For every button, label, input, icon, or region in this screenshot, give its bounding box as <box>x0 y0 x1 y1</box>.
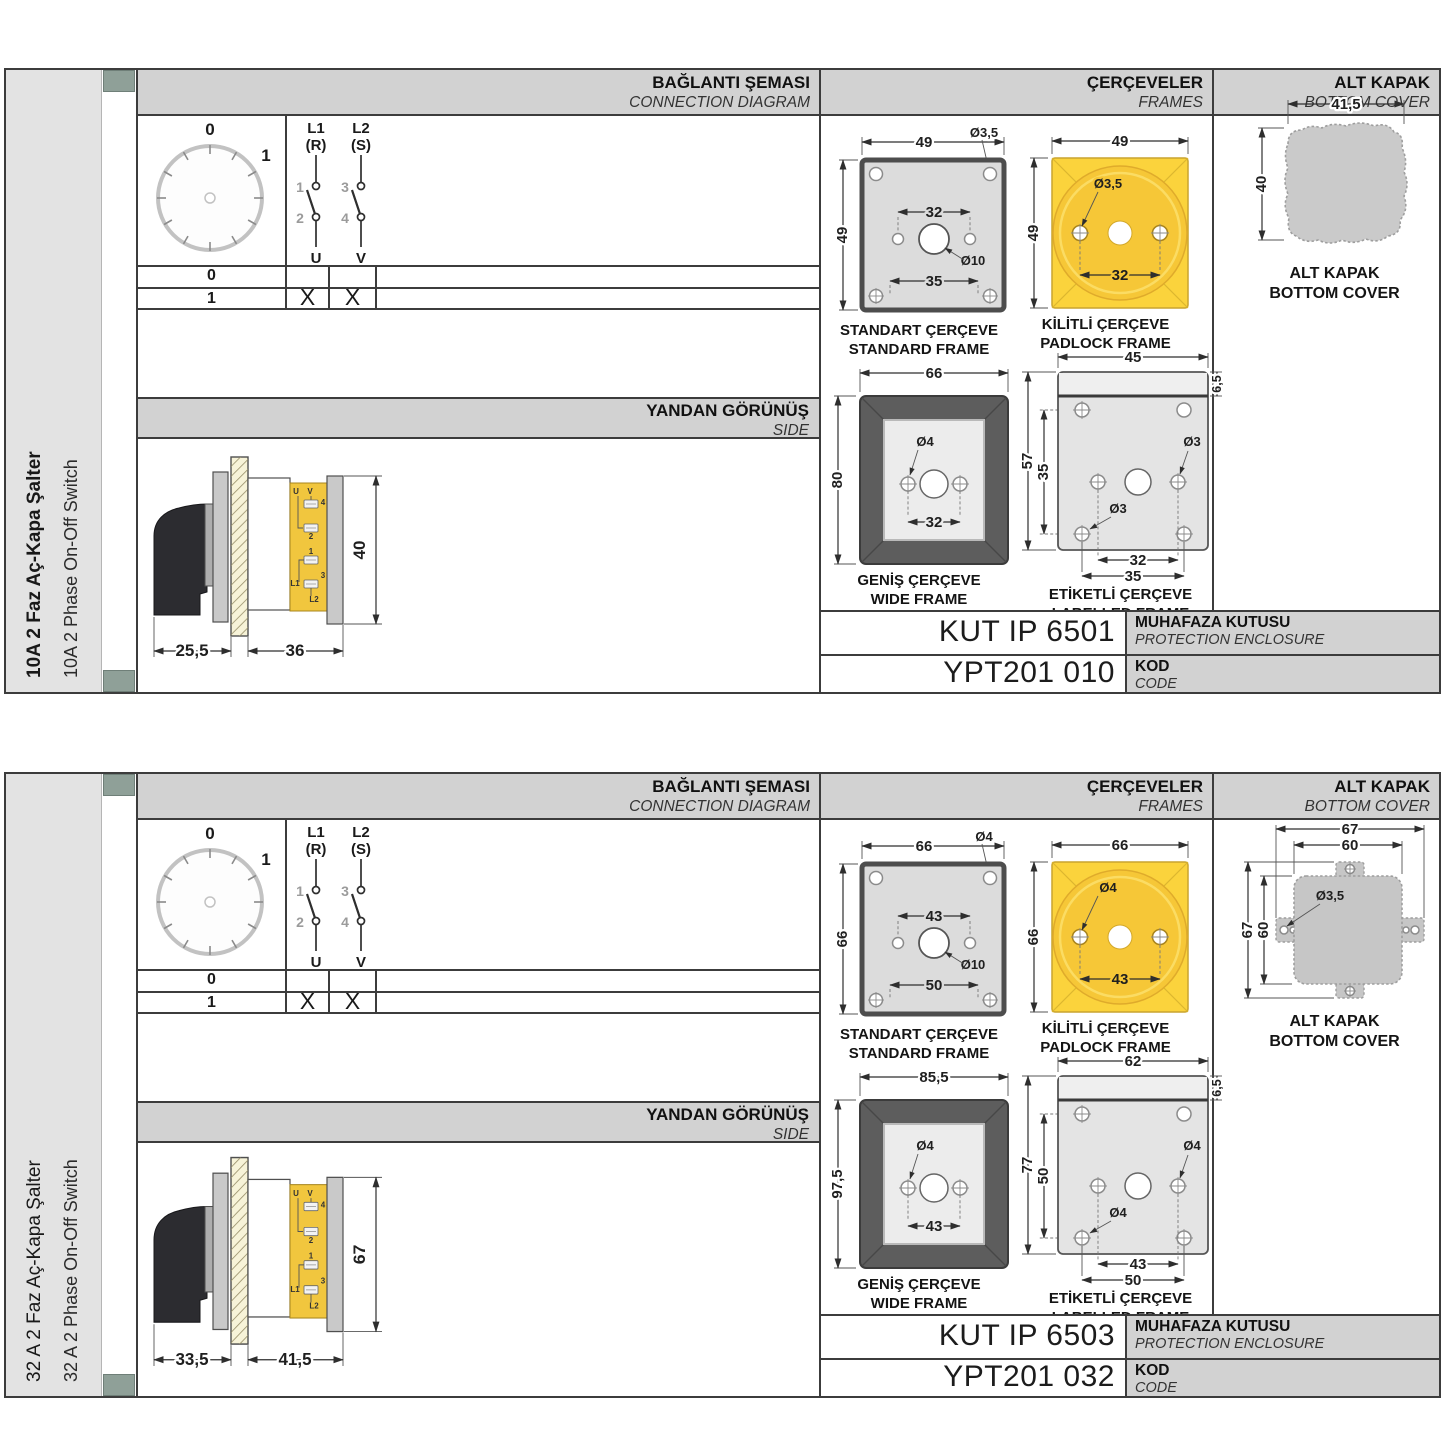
lab-strip-dim: 6,5 <box>1210 375 1223 392</box>
pole1-contact-in: 1 <box>296 179 304 195</box>
header-frames-tr: ÇERÇEVELER <box>821 776 1203 797</box>
cover-caption-en: BOTTOM COVER <box>1232 284 1437 304</box>
std-lower-dim: 35 <box>926 273 943 290</box>
enclosure-row: KUT IP 6503 MUHAFAZA KUTUSU PROTECTION E… <box>821 1314 1439 1358</box>
binding-strip <box>102 70 138 692</box>
padlock-frame-block: 66 66 Ø4 43 KİLİTLİ ÇERÇEVE PADLOCK FRAM… <box>1018 832 1193 1058</box>
pole2-line-label: L2 <box>352 824 370 841</box>
side-view-band: YANDAN GÖRÜNÜŞ SIDE <box>138 1101 819 1143</box>
wide-hole-dim: Ø4 <box>916 434 934 449</box>
cover-caption-tr: ALT KAPAK <box>1232 264 1437 284</box>
cover-width-dim: 41,5 <box>1331 96 1360 113</box>
lab-hole-dim-a: Ø3 <box>1183 434 1200 449</box>
padlock-frame-drawing: 49 49 Ø3,5 32 <box>1018 128 1193 314</box>
side-title-bar: 10A 2 Faz Aç-Kapa Şalter 10A 2 Phase On-… <box>6 70 102 692</box>
cover-body-shape <box>1294 876 1402 984</box>
side-view-band-en: SIDE <box>138 421 809 440</box>
lab-lower-dim: 50 <box>1125 1272 1142 1288</box>
table-line-mid <box>138 287 819 289</box>
code-label-en: CODE <box>1135 676 1431 693</box>
pole2-contact-in: 3 <box>341 883 349 899</box>
header-frames: ÇERÇEVELER FRAMES <box>819 70 1212 114</box>
pad-width-dim: 66 <box>1112 837 1129 854</box>
end-cap <box>327 476 343 624</box>
terminal-l2-label: L2 <box>309 1301 319 1310</box>
pole1-line-sublabel: (R) <box>306 137 327 154</box>
table-row0-position: 0 <box>138 971 285 989</box>
code-label-tr: KOD <box>1135 657 1431 676</box>
strip-mark-bottom <box>103 670 135 692</box>
pad-width-dim: 49 <box>1112 133 1129 150</box>
side-view-band-tr: YANDAN GÖRÜNÜŞ <box>138 400 809 421</box>
std-corner-hole-dim: Ø3,5 <box>970 125 998 140</box>
switch-dial-drawing: 0 1 <box>138 116 285 265</box>
table-row1-position: 1 <box>138 994 285 1012</box>
bottom-cover-drawing: 41,5 40 <box>1232 92 1432 262</box>
wide-frame-drawing: 85,5 97,5 Ø4 43 <box>824 1064 1014 1274</box>
switch-handle <box>154 504 207 615</box>
code-row: YPT201 032 KOD CODE <box>821 1358 1439 1396</box>
header-connection-diagram: BAĞLANTI ŞEMASI CONNECTION DIAGRAM <box>138 70 819 114</box>
strip-mark-top <box>103 774 135 796</box>
dial-position-0: 0 <box>205 824 214 843</box>
wide-inner-dim: 43 <box>926 1218 943 1235</box>
table-vline-v <box>375 265 377 310</box>
lab-height-dim: 77 <box>1019 1157 1036 1174</box>
terminal-l1-label: L1 <box>290 579 300 588</box>
terminal-1-label: 1 <box>309 547 314 556</box>
header-connection-en: CONNECTION DIAGRAM <box>138 93 810 112</box>
terminal-v-label: V <box>307 1189 313 1198</box>
lab-height-dim: 57 <box>1019 453 1036 470</box>
wide-caption-en: WIDE FRAME <box>824 591 1014 610</box>
dial-position-0: 0 <box>205 120 214 139</box>
side-left-dim: 33,5 <box>175 1349 208 1369</box>
padlock-frame-block: 49 49 Ø3,5 32 KİLİTLİ ÇERÇEVE PADLOCK FR… <box>1018 128 1193 354</box>
side-height-dim: 40 <box>350 541 369 560</box>
switch-body <box>248 1179 290 1317</box>
binding-strip <box>102 774 138 1396</box>
padlock-frame-drawing: 66 66 Ø4 43 <box>1018 832 1193 1018</box>
header-frames-tr: ÇERÇEVELER <box>821 72 1203 93</box>
strip-mark-top <box>103 70 135 92</box>
side-height-dim: 67 <box>349 1245 369 1265</box>
table-row1-u-mark: X <box>287 990 328 1012</box>
code-label-cell: KOD CODE <box>1125 1360 1439 1396</box>
front-plate <box>213 1173 228 1329</box>
cover-hole-dim: Ø3,5 <box>1316 888 1344 903</box>
header-frames-en: FRAMES <box>821 93 1203 112</box>
pole1-contact-in: 1 <box>296 883 304 899</box>
product-panel: 10A 2 Faz Aç-Kapa Şalter 10A 2 Phase On-… <box>4 68 1441 694</box>
cover-height-dim: 67 <box>1239 922 1256 939</box>
pad-caption-tr: KİLİTLİ ÇERÇEVE <box>1018 1020 1193 1039</box>
cover-width2-dim: 60 <box>1342 837 1359 854</box>
terminal-l1-label: L1 <box>290 1285 300 1294</box>
strip-mark-bottom <box>103 1374 135 1396</box>
header-connection-diagram: BAĞLANTI ŞEMASI CONNECTION DIAGRAM <box>138 774 819 818</box>
product-title-tr: 32 A 2 Faz Aç-Kapa Şalter <box>16 774 54 1382</box>
header-cover-en: BOTTOM COVER <box>1214 797 1430 816</box>
switch-body <box>248 478 290 610</box>
standard-frame-drawing: 49 Ø3,5 49 32 Ø10 35 <box>824 124 1014 320</box>
pad-hole-dim: Ø3,5 <box>1094 176 1122 191</box>
enclosure-label-en: PROTECTION ENCLOSURE <box>1135 1336 1431 1353</box>
std-corner-hole-dim: Ø4 <box>975 829 993 844</box>
lab-lower-dim: 35 <box>1125 568 1142 584</box>
table-line-bottom <box>138 1012 819 1014</box>
pad-hole-dim: Ø4 <box>1099 880 1117 895</box>
lab-strip-dim: 6,5 <box>1210 1079 1223 1096</box>
switch-handle <box>154 1207 207 1323</box>
divider-frames-column <box>819 774 821 1396</box>
labelled-frame-block: 45 6,5 57 35 Ø3 Ø3 32 <box>1018 346 1223 624</box>
pole1-line-sublabel: (R) <box>306 841 327 858</box>
table-vline-v <box>375 969 377 1014</box>
end-cap <box>327 1177 343 1331</box>
wide-width-dim: 66 <box>926 365 943 382</box>
pole2-contact-out: 4 <box>341 210 349 226</box>
std-lower-dim: 50 <box>926 977 943 994</box>
pole1-line-label: L1 <box>307 824 325 841</box>
std-center-hole-dim: Ø10 <box>961 253 986 268</box>
terminal-4-label: 4 <box>321 498 326 507</box>
dial-position-1: 1 <box>261 146 270 165</box>
enclosure-label-en: PROTECTION ENCLOSURE <box>1135 632 1431 649</box>
product-code-value: YPT201 010 <box>821 656 1125 692</box>
std-caption-en: STANDARD FRAME <box>824 1045 1014 1064</box>
pad-inner-dim: 32 <box>1112 267 1129 284</box>
header-connection-tr: BAĞLANTI ŞEMASI <box>138 72 810 93</box>
wide-hole-dim: Ø4 <box>916 1138 934 1153</box>
product-title-tr: 10A 2 Faz Aç-Kapa Şalter <box>16 70 54 678</box>
pad-height-dim: 49 <box>1025 225 1042 242</box>
product-title-en: 32 A 2 Phase On-Off Switch <box>54 774 88 1382</box>
side-view-band-tr: YANDAN GÖRÜNÜŞ <box>138 1104 809 1125</box>
std-caption-en: STANDARD FRAME <box>824 341 1014 360</box>
table-row1-position: 1 <box>138 290 285 308</box>
std-inner-dim: 32 <box>926 204 943 221</box>
pole1-output-label: U <box>311 250 322 265</box>
enclosure-label-tr: MUHAFAZA KUTUSU <box>1135 613 1431 632</box>
lab-inner-height-dim: 50 <box>1035 1168 1052 1185</box>
standard-frame-block: 66 Ø4 66 43 Ø10 50 STANDART ÇERÇEVE STAN… <box>824 828 1014 1064</box>
wide-width-dim: 85,5 <box>919 1069 948 1086</box>
terminal-u-label: U <box>293 1189 299 1198</box>
side-view-band-en: SIDE <box>138 1125 809 1144</box>
product-panel: 32 A 2 Faz Aç-Kapa Şalter 32 A 2 Phase O… <box>4 772 1441 1398</box>
cover-height-dim: 40 <box>1253 176 1270 193</box>
header-cover-tr: ALT KAPAK <box>1214 72 1430 93</box>
table-line-mid <box>138 991 819 993</box>
wide-caption-tr: GENİŞ ÇERÇEVE <box>824 572 1014 591</box>
terminal-u-label: U <box>293 487 299 496</box>
cover-caption-tr: ALT KAPAK <box>1232 1012 1437 1032</box>
terminal-1-label: 1 <box>309 1251 314 1260</box>
std-inner-dim: 43 <box>926 908 943 925</box>
terminal-3-label: 3 <box>321 571 326 580</box>
labelled-frame-drawing: 62 6,5 77 50 Ø4 Ø4 43 <box>1018 1050 1223 1288</box>
side-right-dim: 36 <box>286 641 305 660</box>
header-frames-en: FRAMES <box>821 797 1203 816</box>
side-view-drawing: U V 4 2 1 3 L1 L2 67 33,5 41,5 <box>144 1144 444 1392</box>
std-width-dim: 49 <box>916 134 933 151</box>
lab-hole-dim-b: Ø3 <box>1109 501 1126 516</box>
std-height-dim: 66 <box>834 931 851 948</box>
table-row0-position: 0 <box>138 267 285 285</box>
lab-inner-dim: 32 <box>1130 552 1147 569</box>
pole2-output-label: V <box>356 954 366 969</box>
header-connection-tr: BAĞLANTI ŞEMASI <box>138 776 810 797</box>
labelled-frame-drawing: 45 6,5 57 35 Ø3 Ø3 32 <box>1018 346 1223 584</box>
lab-width-dim: 62 <box>1125 1053 1142 1070</box>
cover-height2-dim: 60 <box>1255 922 1272 939</box>
code-label-tr: KOD <box>1135 1361 1431 1380</box>
wide-caption-en: WIDE FRAME <box>824 1295 1014 1314</box>
pole2-contact-in: 3 <box>341 179 349 195</box>
section-headers: BAĞLANTI ŞEMASI CONNECTION DIAGRAM ÇERÇE… <box>138 774 1439 820</box>
side-view-drawing: U V 4 2 1 3 L1 L2 40 25,5 36 <box>144 444 444 682</box>
pad-caption-tr: KİLİTLİ ÇERÇEVE <box>1018 316 1193 335</box>
table-line-bottom <box>138 308 819 310</box>
terminal-4-label: 4 <box>321 1200 326 1209</box>
code-label-en: CODE <box>1135 1380 1431 1397</box>
header-cover-tr: ALT KAPAK <box>1214 776 1430 797</box>
side-title-bar: 32 A 2 Faz Aç-Kapa Şalter 32 A 2 Phase O… <box>6 774 102 1396</box>
cover-width-dim: 67 <box>1342 821 1359 838</box>
wide-caption-tr: GENİŞ ÇERÇEVE <box>824 1276 1014 1295</box>
side-view-band: YANDAN GÖRÜNÜŞ SIDE <box>138 397 819 439</box>
header-bottom-cover: ALT KAPAK BOTTOM COVER <box>1212 774 1439 818</box>
std-height-dim: 49 <box>834 227 851 244</box>
pole1-contact-out: 2 <box>296 914 304 930</box>
bottom-cover-block: 41,5 40 41,5 40 <box>1232 92 1437 304</box>
enclosure-code-value: KUT IP 6501 <box>821 612 1125 654</box>
pole2-output-label: V <box>356 250 366 265</box>
std-caption-tr: STANDART ÇERÇEVE <box>824 1026 1014 1045</box>
code-row: YPT201 010 KOD CODE <box>821 654 1439 692</box>
pole2-line-sublabel: (S) <box>351 841 371 858</box>
lab-hole-dim-a: Ø4 <box>1183 1138 1201 1153</box>
contact-diagram-drawing: L1 (R) 1 2 U L2 (S) 3 4 V <box>285 116 819 265</box>
table-row1-v-mark: X <box>330 990 375 1012</box>
header-frames: ÇERÇEVELER FRAMES <box>819 774 1212 818</box>
pole1-line-label: L1 <box>307 120 325 137</box>
wide-frame-drawing: 66 80 Ø4 32 <box>824 360 1014 570</box>
bottom-cover-block: 67 67 67 60 67 60 <box>1232 818 1437 1052</box>
standard-frame-drawing: 66 Ø4 66 43 Ø10 50 <box>824 828 1014 1024</box>
front-plate <box>213 472 228 622</box>
table-row1-v-mark: X <box>330 286 375 308</box>
lab-inner-height-dim: 35 <box>1035 464 1052 481</box>
terminal-l2-label: L2 <box>309 595 319 604</box>
table-row1-u-mark: X <box>287 286 328 308</box>
side-right-dim: 41,5 <box>278 1349 311 1369</box>
terminal-2-label: 2 <box>309 532 314 541</box>
switch-dial-drawing: 0 1 <box>138 820 285 969</box>
cover-caption-en: BOTTOM COVER <box>1232 1032 1437 1052</box>
pad-inner-dim: 43 <box>1112 971 1129 988</box>
catalog-page: 10A 2 Faz Aç-Kapa Şalter 10A 2 Phase On-… <box>0 0 1445 1398</box>
terminal-v-label: V <box>307 487 313 496</box>
product-code-value: YPT201 032 <box>821 1360 1125 1396</box>
terminal-2-label: 2 <box>309 1236 314 1245</box>
contact-diagram-drawing: L1 (R) 1 2 U L2 (S) 3 4 V <box>285 820 819 969</box>
header-connection-en: CONNECTION DIAGRAM <box>138 797 810 816</box>
wide-height-dim: 80 <box>829 472 846 489</box>
wide-height-dim: 97,5 <box>829 1169 846 1198</box>
cover-blob-shape <box>1285 123 1407 243</box>
wide-frame-block: 66 80 Ø4 32 GENİŞ ÇERÇEVE WIDE FRAME <box>824 360 1014 610</box>
wide-inner-dim: 32 <box>926 514 943 531</box>
bottom-cover-drawing: 67 60 67 60 Ø3,5 <box>1232 818 1432 1010</box>
pad-height-dim: 66 <box>1025 929 1042 946</box>
std-width-dim: 66 <box>916 838 933 855</box>
enclosure-code-value: KUT IP 6503 <box>821 1316 1125 1358</box>
enclosure-label-cell: MUHAFAZA KUTUSU PROTECTION ENCLOSURE <box>1125 1316 1439 1358</box>
lab-caption-tr: ETİKETLİ ÇERÇEVE <box>1018 1290 1223 1309</box>
divider-frames-column <box>819 70 821 692</box>
pole2-line-sublabel: (S) <box>351 137 371 154</box>
std-center-hole-dim: Ø10 <box>961 957 986 972</box>
wide-frame-block: 85,5 97,5 Ø4 43 GENİŞ ÇERÇEVE WIDE FRAME <box>824 1064 1014 1314</box>
side-left-dim: 25,5 <box>175 641 208 660</box>
dial-position-1: 1 <box>261 850 270 869</box>
pole2-line-label: L2 <box>352 120 370 137</box>
standard-frame-block: 49 Ø3,5 49 32 Ø10 35 STANDART ÇERÇEVE ST… <box>824 124 1014 360</box>
std-caption-tr: STANDART ÇERÇEVE <box>824 322 1014 341</box>
labelled-frame-block: 62 6,5 77 50 Ø4 Ø4 43 <box>1018 1050 1223 1328</box>
product-title-en: 10A 2 Phase On-Off Switch <box>54 70 88 678</box>
enclosure-label-cell: MUHAFAZA KUTUSU PROTECTION ENCLOSURE <box>1125 612 1439 654</box>
lab-width-dim: 45 <box>1125 349 1142 366</box>
lab-inner-dim: 43 <box>1130 1256 1147 1273</box>
pole1-contact-out: 2 <box>296 210 304 226</box>
lab-caption-tr: ETİKETLİ ÇERÇEVE <box>1018 586 1223 605</box>
pole2-contact-out: 4 <box>341 914 349 930</box>
terminal-3-label: 3 <box>321 1276 326 1285</box>
enclosure-row: KUT IP 6501 MUHAFAZA KUTUSU PROTECTION E… <box>821 610 1439 654</box>
enclosure-label-tr: MUHAFAZA KUTUSU <box>1135 1317 1431 1336</box>
pole1-output-label: U <box>311 954 322 969</box>
lab-hole-dim-b: Ø4 <box>1109 1205 1127 1220</box>
code-label-cell: KOD CODE <box>1125 656 1439 692</box>
